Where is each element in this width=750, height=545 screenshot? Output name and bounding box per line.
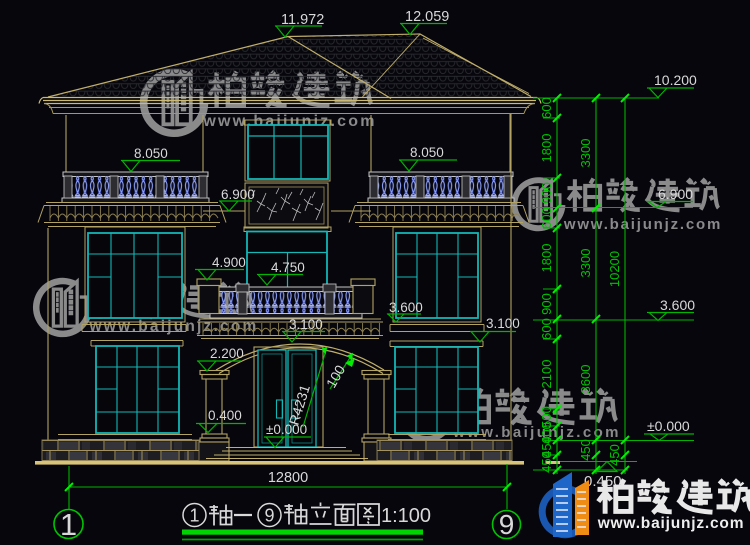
svg-text:12.059: 12.059 [405,9,449,25]
svg-text:12800: 12800 [268,470,308,486]
svg-text:3.600: 3.600 [660,297,695,313]
svg-text:3.100: 3.100 [486,316,520,331]
svg-text:www.baijunjz.com: www.baijunjz.com [563,216,722,233]
svg-text:8.050: 8.050 [134,146,168,161]
svg-text:600: 600 [539,318,554,340]
svg-text:2100: 2100 [539,360,554,389]
svg-text:www.baijunjz.com: www.baijunjz.com [597,515,745,532]
svg-text:10.200: 10.200 [654,72,697,88]
svg-text:600: 600 [539,97,554,119]
svg-text:8.050: 8.050 [410,145,444,160]
svg-text:450: 450 [539,451,554,473]
svg-text:0.400: 0.400 [208,408,242,423]
svg-text:3.100: 3.100 [289,317,323,332]
svg-text:600: 600 [539,207,554,229]
svg-text:3300: 3300 [578,249,593,278]
svg-text:www.baijunjz.com: www.baijunjz.com [89,318,259,335]
svg-text:450: 450 [578,439,593,461]
svg-text:±0.000: ±0.000 [647,418,690,434]
svg-text:450: 450 [607,444,622,466]
svg-text:1: 1 [60,507,77,542]
svg-text:2.200: 2.200 [210,346,244,361]
svg-text:3300: 3300 [578,139,593,168]
svg-text:3.600: 3.600 [389,300,423,315]
svg-text:1: 1 [189,506,199,526]
svg-text:1:100: 1:100 [381,505,431,527]
svg-text:4.900: 4.900 [212,255,246,270]
svg-text:1800: 1800 [539,134,554,163]
svg-text:6.900: 6.900 [658,186,693,202]
svg-text:6.900: 6.900 [221,187,255,202]
svg-text:900: 900 [539,293,554,315]
svg-text:9: 9 [264,506,274,526]
svg-text:1800: 1800 [539,244,554,273]
svg-text:3600: 3600 [578,365,593,394]
svg-text:900: 900 [539,182,554,204]
svg-text:10200: 10200 [607,251,622,287]
svg-text:9: 9 [499,509,515,540]
svg-text:4.750: 4.750 [271,260,305,275]
